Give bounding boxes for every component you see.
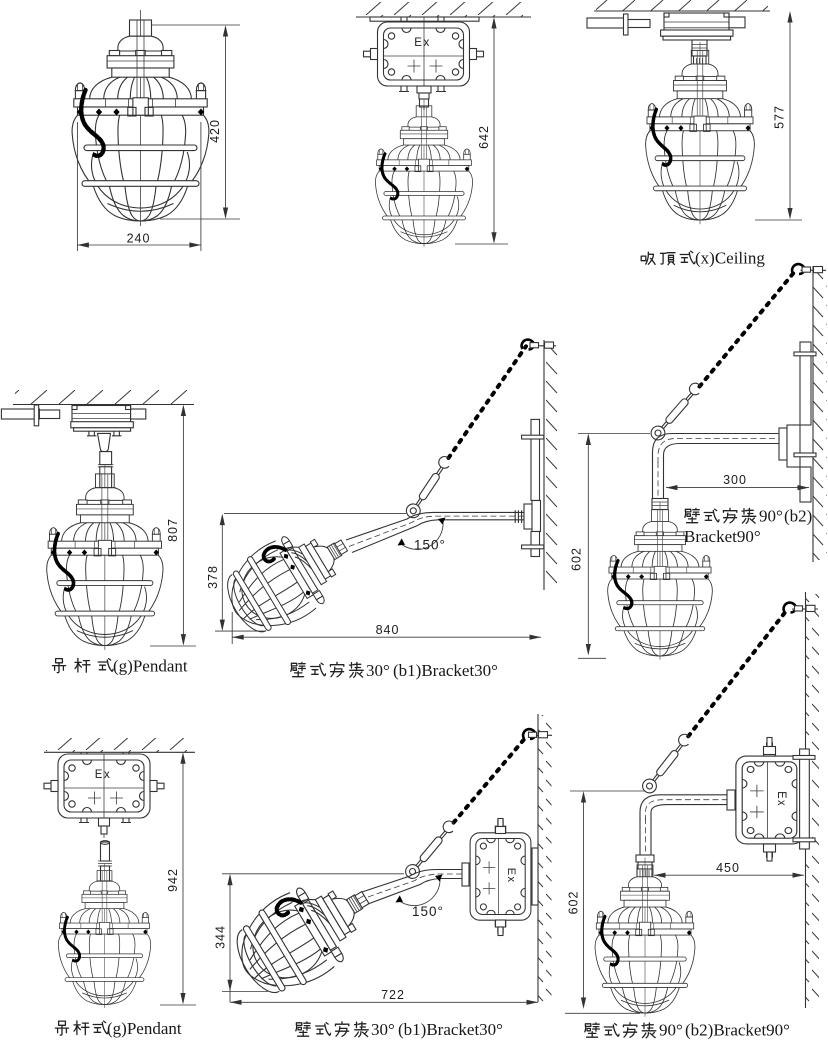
svg-text:(g)Pendant: (g)Pendant <box>107 1019 182 1038</box>
svg-text:642: 642 <box>477 125 491 149</box>
svg-text:840: 840 <box>376 623 400 637</box>
svg-text:378: 378 <box>206 565 220 589</box>
svg-text:30°: 30° <box>371 1020 395 1039</box>
svg-text:150°: 150° <box>414 538 446 553</box>
svg-text:344: 344 <box>214 925 228 949</box>
svg-text:(b1)Bracket30°: (b1)Bracket30° <box>393 661 498 680</box>
svg-text:(b2): (b2) <box>784 507 812 526</box>
svg-text:942: 942 <box>166 868 180 892</box>
svg-text:90°: 90° <box>659 1021 683 1040</box>
svg-text:150°: 150° <box>412 904 444 919</box>
svg-text:420: 420 <box>208 119 222 143</box>
svg-text:30°: 30° <box>366 661 390 680</box>
svg-text:Bracket90°: Bracket90° <box>684 527 761 546</box>
svg-text:240: 240 <box>127 232 151 246</box>
svg-text:(b2)Bracket90°: (b2)Bracket90° <box>685 1021 790 1040</box>
svg-text:(g)Pendant: (g)Pendant <box>113 657 188 676</box>
svg-text:807: 807 <box>166 518 180 542</box>
svg-text:300: 300 <box>723 473 747 487</box>
svg-text:(x)Ceiling: (x)Ceiling <box>695 249 765 268</box>
svg-text:602: 602 <box>567 891 581 915</box>
svg-text:722: 722 <box>381 988 405 1002</box>
svg-text:(b1)Bracket30°: (b1)Bracket30° <box>398 1020 503 1039</box>
svg-text:577: 577 <box>773 105 787 129</box>
svg-text:450: 450 <box>716 861 740 875</box>
svg-text:90°: 90° <box>759 507 783 526</box>
svg-text:602: 602 <box>570 547 584 571</box>
